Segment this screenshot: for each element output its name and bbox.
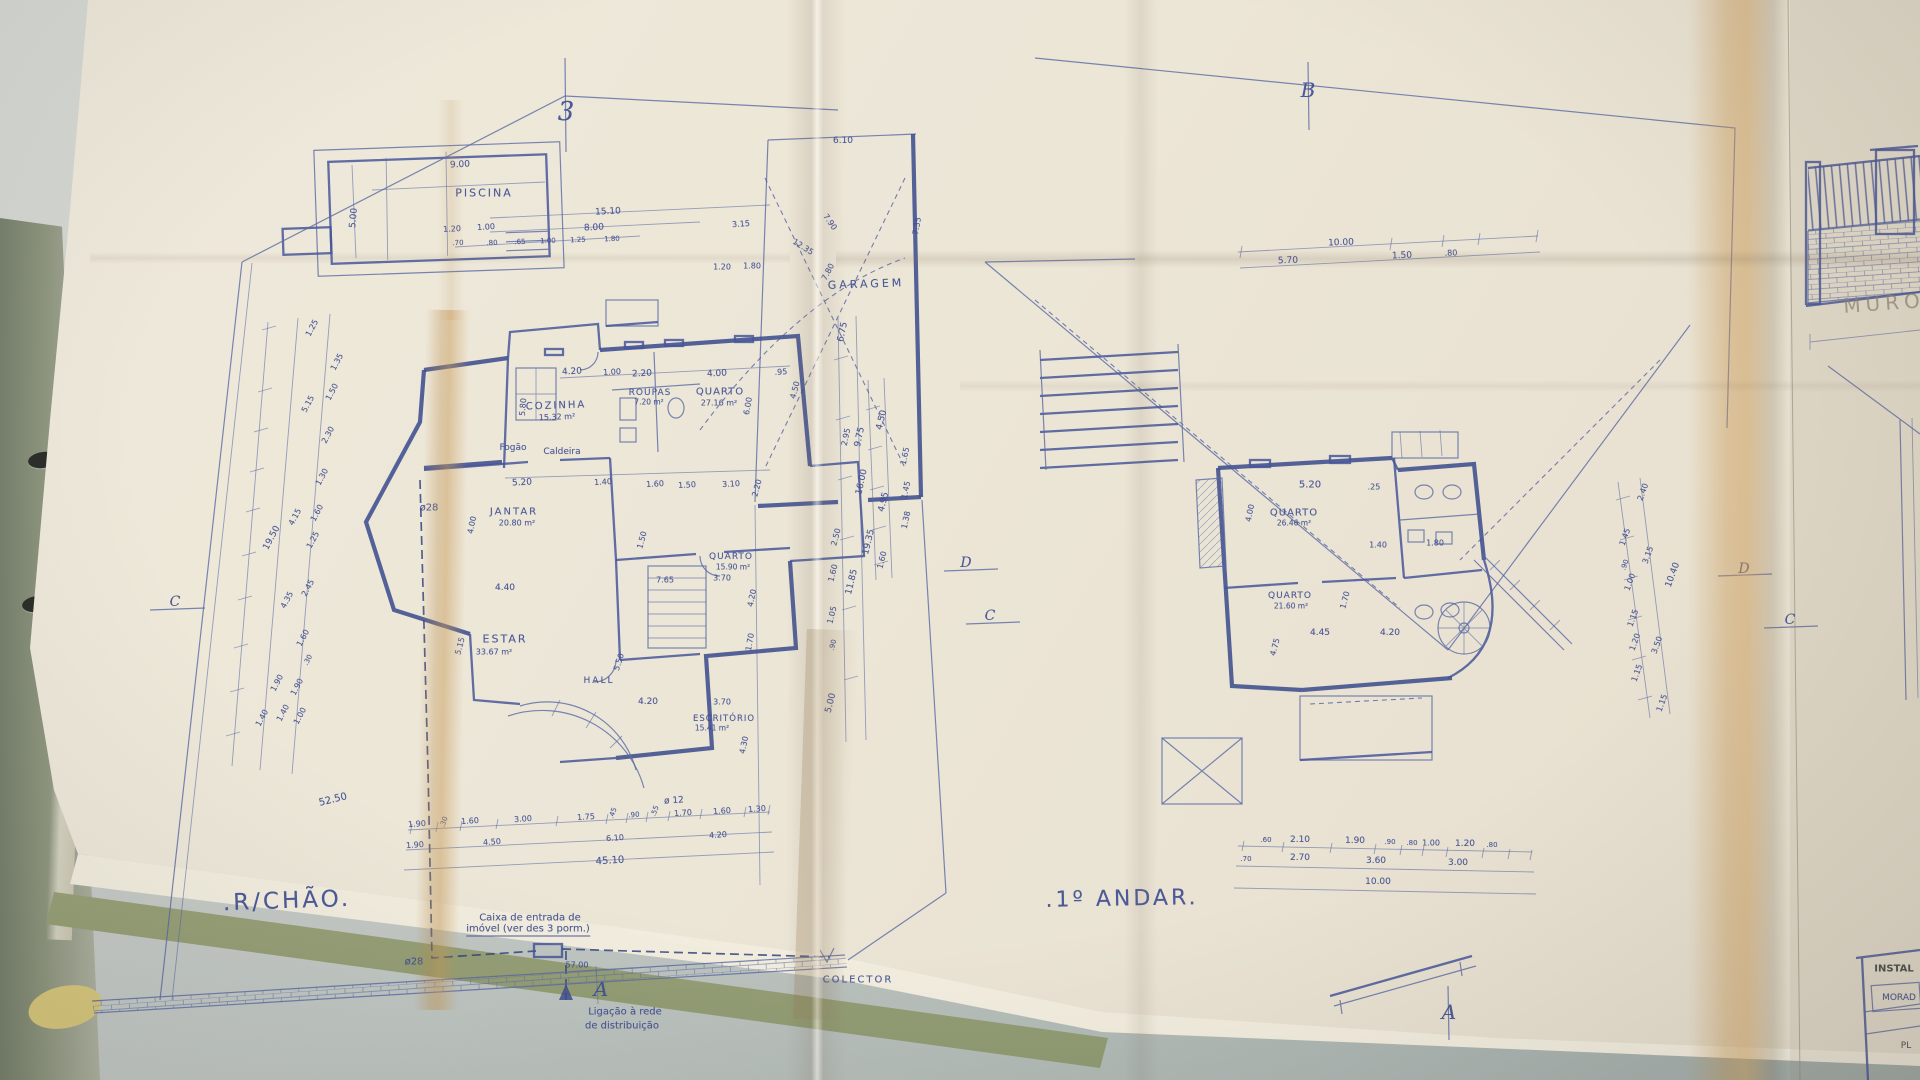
dim-label: .80: [1444, 248, 1457, 257]
dim-label: 2.20: [632, 368, 653, 379]
titleblock-row: PL: [1901, 1041, 1911, 1051]
dim-label: .65: [514, 238, 526, 247]
dim-label: 5.70: [1278, 256, 1298, 267]
dim-label: 1.20: [443, 224, 461, 234]
dim-label: .90: [628, 811, 640, 820]
dim-label: .25: [1368, 483, 1381, 492]
dim-label: 7.90: [821, 212, 839, 232]
dim-label: 1.40: [594, 477, 612, 487]
annotation-colector: COLECTOR: [823, 975, 894, 986]
dim-label: 1.90: [408, 819, 426, 829]
dim-label: 4.45: [1310, 628, 1330, 638]
dim-label: 1.00: [477, 222, 495, 232]
dim-label: 10.00: [1365, 877, 1391, 887]
plan-title: .1º ANDAR.: [1045, 885, 1198, 913]
dim-label: 1.15: [1626, 608, 1641, 628]
dim-label: .30: [438, 815, 449, 828]
dim-label: 6.75: [836, 321, 850, 343]
room-label-jantar: JANTAR: [490, 507, 538, 518]
dim-label: .80: [1486, 841, 1497, 849]
dim-label: 1.65: [899, 446, 912, 465]
dim-label: 1.60: [461, 816, 479, 826]
section-marker-c: C: [985, 608, 996, 624]
dim-label: 4.30: [738, 735, 751, 754]
dim-label: 1.35: [329, 352, 345, 372]
dim-label: 52.50: [318, 791, 348, 809]
dim-label: 1.90: [269, 673, 285, 693]
room-label-quarto2: QUARTO: [1268, 591, 1312, 601]
dim-label: 5.00: [348, 208, 360, 229]
room-label-cozinha: COZINHA: [526, 399, 587, 412]
dim-label: 45.10: [595, 855, 624, 868]
dim-label: 1.45: [900, 480, 913, 499]
dim-label: 1.70: [674, 808, 692, 818]
room-label-piscina: PISCINA: [455, 187, 513, 200]
dim-label: 1.60: [713, 806, 731, 816]
dim-label: 5.80: [518, 398, 529, 417]
dim-label: 1.00: [1623, 572, 1638, 592]
dim-label: 2.40: [1636, 482, 1651, 502]
room-label-quarto2: QUARTO: [709, 552, 753, 562]
dim-label: 1.25: [304, 318, 320, 338]
dim-label: 3.70: [713, 698, 731, 707]
titleblock-heading: INSTAL: [1874, 964, 1913, 975]
dim-label: .90: [1619, 558, 1630, 571]
dim-label: 2.20: [750, 478, 763, 498]
annotation-caldeira: Caldeira: [543, 447, 580, 457]
dim-label: 16.00: [854, 468, 869, 495]
dim-label: 3.70: [713, 574, 731, 583]
dim-label: 4.20: [638, 697, 658, 707]
dim-label: 9.00: [450, 159, 471, 170]
dim-label: 1.30: [748, 804, 766, 814]
dim-label: 1.60: [826, 563, 839, 582]
room-area: 26.46 m²: [1277, 519, 1311, 528]
dim-label: 1.80: [743, 262, 761, 271]
room-label-quarto1: QUARTO: [1270, 508, 1318, 519]
plan-title: .R/CHÃO.: [222, 886, 351, 916]
dim-label: 6.10: [606, 833, 624, 843]
dim-label: 4.20: [1380, 628, 1400, 638]
photo-of-blueprint: .R/CHÃO.3PISCINA9.005.001.201.0015.108.0…: [0, 0, 1920, 1080]
dim-label: .55: [649, 804, 660, 817]
dim-label: 2.95: [840, 427, 853, 446]
annotation-caixa-line2: imóvel (ver des 3 porm.): [466, 924, 590, 937]
dim-label: 11.85: [844, 568, 860, 595]
dim-label: 3.15: [1641, 545, 1656, 565]
room-area: 20.80 m²: [499, 519, 535, 528]
dim-label: .80: [486, 239, 498, 248]
dim-label: 19.50: [262, 524, 283, 551]
dim-label: 5.00: [824, 692, 839, 714]
dim-label: 1.60: [646, 479, 664, 489]
room-area: 21.60 m²: [1274, 602, 1308, 611]
dim-label: 10.00: [1328, 238, 1354, 249]
dim-label: .45: [607, 806, 618, 819]
room-label-hall: HALL: [584, 676, 615, 686]
dim-label: 4.75: [1268, 637, 1281, 657]
dim-label: 4.40: [495, 583, 515, 593]
dim-label: 5.20: [1299, 480, 1321, 491]
section-marker-3: 3: [558, 97, 575, 127]
annotation-caixa-line1: Caixa de entrada de: [479, 913, 581, 924]
dim-label: 4.15: [287, 507, 303, 527]
dim-label: 12.35: [791, 237, 815, 257]
annotation-pipe: ø28: [420, 503, 439, 514]
room-label-roupas: ROUPAS: [629, 388, 672, 398]
dim-label: 1.38: [900, 510, 913, 529]
section-marker-a: A: [594, 977, 608, 1001]
dim-label: 1.20: [1455, 839, 1475, 849]
annotation-muro: MURO: [1842, 288, 1920, 318]
labels-layer: .R/CHÃO.3PISCINA9.005.001.201.0015.108.0…: [0, 0, 1920, 1080]
dim-label: 1.75: [577, 812, 595, 822]
dim-label: 4.20: [709, 830, 727, 840]
dim-label: 4.20: [746, 588, 759, 607]
dim-label: 4.95: [877, 491, 892, 513]
section-marker-c: C: [1785, 612, 1796, 628]
dim-label: 3.60: [1366, 856, 1386, 866]
dim-label: 2.50: [829, 527, 842, 547]
dim-label: .70: [452, 239, 464, 248]
dim-label: 6.10: [833, 136, 853, 146]
dim-label: 1.70: [1338, 590, 1351, 610]
dim-label: 1.15: [1655, 693, 1670, 713]
dim-label: 4.20: [562, 366, 583, 377]
dim-label: 2.10: [1290, 835, 1310, 845]
annotation-ligacao-line2: de distribuição: [585, 1021, 659, 1032]
dim-label: 1.25: [570, 236, 586, 245]
dim-label: .70: [1240, 855, 1251, 863]
dim-label: 5.20: [512, 477, 533, 488]
dim-label: 4.00: [1244, 503, 1257, 522]
dim-label: 1.20: [713, 263, 731, 272]
annotation-pipe: ø28: [405, 957, 424, 968]
dim-label: 1.90: [289, 677, 305, 697]
annotation-ligacao-line1: Ligação à rede: [588, 1007, 662, 1018]
dim-label: 3.50: [1650, 635, 1665, 655]
section-marker-b: B: [1301, 78, 1316, 102]
dim-label: 1.40: [1369, 541, 1387, 550]
room-label-estar: ESTAR: [483, 633, 528, 646]
dim-label: 1.50: [1392, 251, 1412, 262]
section-marker-c: C: [170, 594, 181, 610]
dim-label: 1.30: [314, 467, 330, 487]
room-label-garagem: GARAGEM: [828, 276, 905, 292]
dim-label: 7.65: [656, 576, 674, 585]
dim-label: 2.45: [300, 578, 316, 598]
dim-label: 1.00: [603, 367, 621, 377]
dim-label: 1.15: [1630, 663, 1645, 683]
dim-label: 8.00: [584, 222, 605, 233]
annotation-pipe-small: ø 12: [664, 795, 684, 806]
dim-label: .60: [1260, 836, 1271, 844]
dim-label: 1.05: [825, 605, 838, 624]
section-marker-d: D: [960, 555, 971, 571]
dim-label: 1.60: [309, 503, 325, 523]
dim-label: 5.15: [300, 394, 316, 414]
dim-label: 1.60: [295, 628, 311, 648]
room-area: 33.67 m²: [476, 648, 512, 657]
dim-label: 3.15: [732, 219, 750, 229]
dim-label: 15.10: [595, 206, 621, 217]
room-area: 15.90 m²: [716, 563, 750, 572]
dim-label: 6.00: [742, 396, 754, 415]
dim-label: 19.35: [861, 528, 877, 555]
dim-label: 1.40: [275, 703, 291, 723]
dim-label: 2.70: [1290, 853, 1310, 863]
dim-label: 9.75: [853, 426, 867, 448]
dim-label: 3.00: [514, 814, 532, 824]
dim-label: 3.00: [1448, 858, 1468, 868]
dim-label: 1.25: [305, 530, 321, 550]
dim-label: .95: [774, 367, 787, 377]
dim-label: 57.00: [566, 961, 589, 970]
dim-label: 1.50: [635, 530, 648, 550]
dim-label: 4.50: [788, 380, 801, 400]
dim-label: 5.15: [453, 636, 466, 656]
dim-label: 3.10: [722, 479, 740, 489]
section-marker-a: A: [1442, 1000, 1456, 1024]
room-label-escritorio: ESCRITÓRIO: [693, 714, 755, 724]
dim-label: .90: [828, 639, 838, 652]
dim-label: .90: [1384, 838, 1395, 846]
room-area: 27.16 m²: [701, 399, 737, 408]
dim-label: 1.60: [875, 550, 888, 569]
dim-label: 10.40: [1664, 561, 1682, 589]
dim-label: 1.80: [604, 235, 620, 244]
dim-label: 1.80: [1426, 539, 1444, 548]
dim-label: .30: [302, 653, 314, 667]
dim-label: 1.70: [744, 632, 756, 651]
dim-label: 4.50: [875, 409, 890, 431]
dim-label: 1.90: [406, 840, 424, 850]
dim-label: 1.50: [324, 382, 340, 402]
room-area: 15.32 m²: [539, 412, 576, 422]
dim-label: 4.00: [466, 515, 479, 534]
room-area: 15.41 m²: [695, 724, 729, 733]
titleblock-stamp: MORAD: [1882, 993, 1916, 1003]
section-marker-d: D: [1738, 561, 1749, 577]
dim-label: 4.50: [483, 837, 501, 847]
dim-label: 2.30: [320, 425, 336, 445]
dim-label: 4.35: [279, 590, 295, 610]
dim-label: 7.35: [911, 216, 923, 235]
annotation-fogao: Fogão: [499, 443, 526, 453]
dim-label: 1.20: [1628, 632, 1643, 652]
dim-label: 1.90: [1345, 836, 1365, 846]
room-area: 7.20 m²: [634, 398, 663, 407]
dim-label: 4.00: [707, 368, 728, 379]
dim-label: 5.50: [612, 652, 626, 672]
dim-label: 1.00: [1422, 839, 1440, 848]
dim-label: 1.50: [678, 480, 696, 490]
dim-label: 1.00: [292, 706, 308, 726]
dim-label: 1.00: [540, 237, 556, 246]
dim-label: .80: [1406, 839, 1417, 847]
dim-label: 1.40: [254, 708, 270, 728]
room-label-quarto1: QUARTO: [696, 387, 744, 398]
dim-label: 1.45: [1618, 527, 1633, 547]
